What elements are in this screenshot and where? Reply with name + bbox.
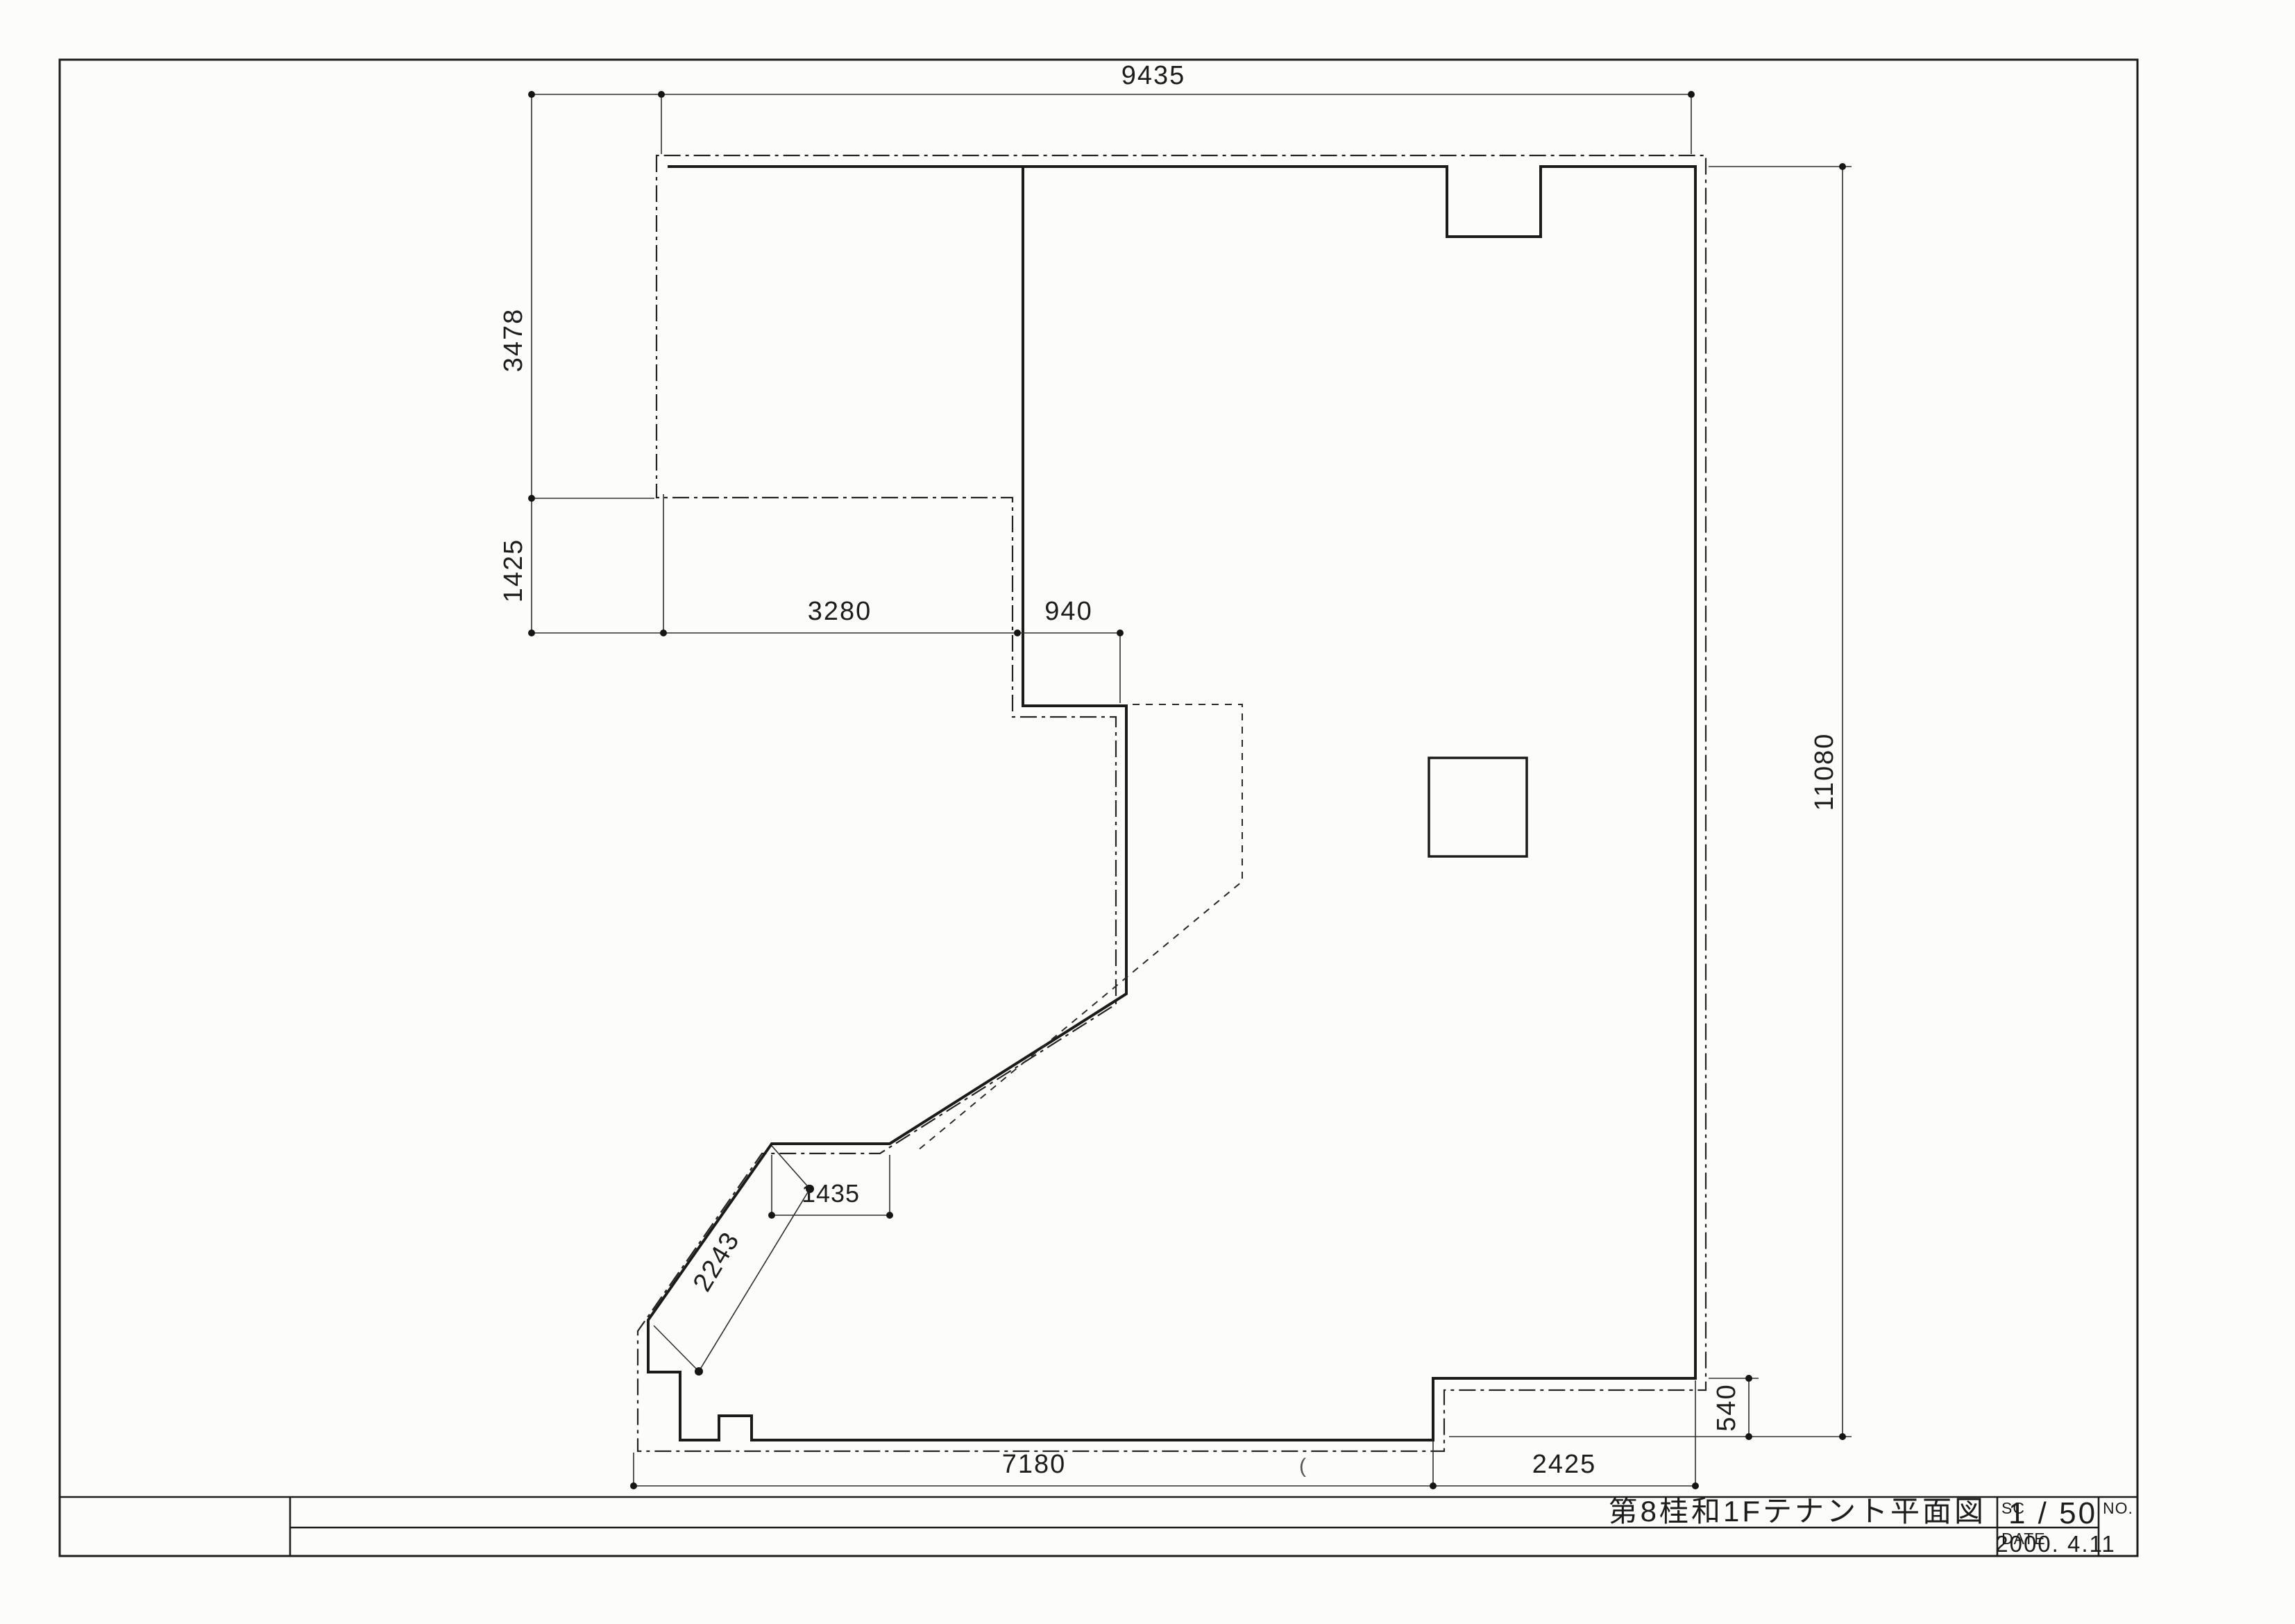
dot [1688, 91, 1695, 98]
dot [1745, 1433, 1752, 1440]
dot [528, 91, 535, 98]
dot [1692, 1482, 1699, 1489]
dot [660, 629, 667, 636]
leader-diagonal-lower [654, 1326, 699, 1371]
dot [528, 495, 535, 502]
dim-text-bottom-width: 7180 [1002, 1450, 1067, 1479]
dot [1430, 1482, 1437, 1489]
floor-plan-canvas: 9435 3478 1425 3280 940 11080 540 7180 2… [0, 0, 2295, 1624]
dot [1745, 1375, 1752, 1382]
dim-text-top-width: 9435 [1121, 61, 1186, 90]
dim-text-right-height: 11080 [1810, 733, 1839, 811]
dim-text-diagonal: 2243 [688, 1226, 746, 1296]
dot [1117, 629, 1124, 636]
dimension-dots [528, 91, 1846, 1489]
dot [1839, 1433, 1846, 1440]
dim-text-left-upper: 3478 [499, 308, 528, 373]
dim-text-interior-offset: 940 [1044, 597, 1092, 626]
dot [658, 91, 665, 98]
dimension-lines [532, 94, 1852, 1486]
drawing-sheet: 9435 3478 1425 3280 940 11080 540 7180 2… [0, 0, 2295, 1624]
dim-text-right-step: 540 [1712, 1383, 1741, 1431]
dim-text-interior-width: 3280 [808, 597, 872, 626]
dim-text-jog: 1435 [802, 1179, 860, 1208]
dim-text-left-lower: 1425 [499, 539, 528, 603]
wall-centerline [638, 155, 1706, 1451]
scale-value: 1 / 50 [2008, 1496, 2097, 1530]
dot [1014, 629, 1021, 636]
dot [630, 1482, 637, 1489]
dot [528, 629, 535, 636]
wall-outline [648, 167, 1695, 1440]
dot [1839, 163, 1846, 170]
dim-text-bottom-right-width: 2425 [1532, 1450, 1597, 1479]
scan-artifact-mark: ( [1299, 1455, 1306, 1478]
date-value: 2000. 4.11 [1995, 1531, 2116, 1557]
hidden-partition-line [917, 704, 1242, 1151]
dot [695, 1367, 703, 1376]
drawing-title: 第8桂和1Fテナント平面図 [1609, 1495, 1986, 1528]
dot [886, 1212, 893, 1219]
column-square [1429, 758, 1527, 856]
dot [768, 1212, 775, 1219]
number-label: NO. [2103, 1499, 2133, 1517]
